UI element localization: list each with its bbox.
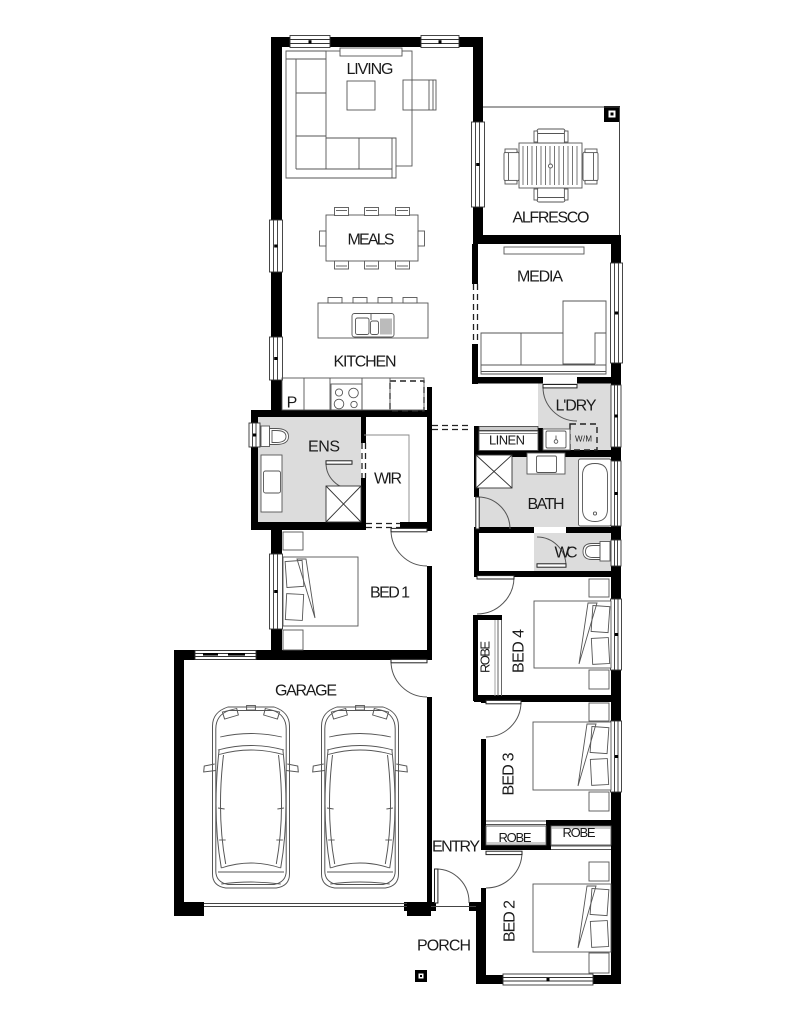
svg-text:BATH: BATH xyxy=(528,496,565,513)
svg-text:ALFRESCO: ALFRESCO xyxy=(513,210,590,227)
svg-text:L'DRY: L'DRY xyxy=(556,398,597,415)
svg-text:GARAGE: GARAGE xyxy=(275,683,337,700)
svg-text:WIR: WIR xyxy=(374,471,402,488)
svg-text:MEALS: MEALS xyxy=(348,232,395,249)
svg-text:KITCHEN: KITCHEN xyxy=(334,354,397,371)
svg-text:ROBE: ROBE xyxy=(499,830,532,845)
svg-text:ROBE: ROBE xyxy=(563,825,596,840)
svg-text:MEDIA: MEDIA xyxy=(517,269,563,286)
svg-text:W/M: W/M xyxy=(575,435,592,444)
svg-text:BED 2: BED 2 xyxy=(502,900,519,942)
svg-text:LIVING: LIVING xyxy=(347,61,394,78)
svg-text:ENS: ENS xyxy=(308,439,340,456)
svg-text:ENTRY: ENTRY xyxy=(432,839,480,856)
svg-text:PORCH: PORCH xyxy=(417,938,471,955)
svg-text:BED 1: BED 1 xyxy=(370,585,410,602)
svg-text:BED 3: BED 3 xyxy=(501,752,518,795)
svg-text:P: P xyxy=(287,395,298,412)
svg-text:BED 4: BED 4 xyxy=(511,629,528,673)
svg-text:LINEN: LINEN xyxy=(489,433,525,448)
svg-text:ROBE: ROBE xyxy=(478,641,493,673)
svg-text:WC: WC xyxy=(555,545,578,562)
